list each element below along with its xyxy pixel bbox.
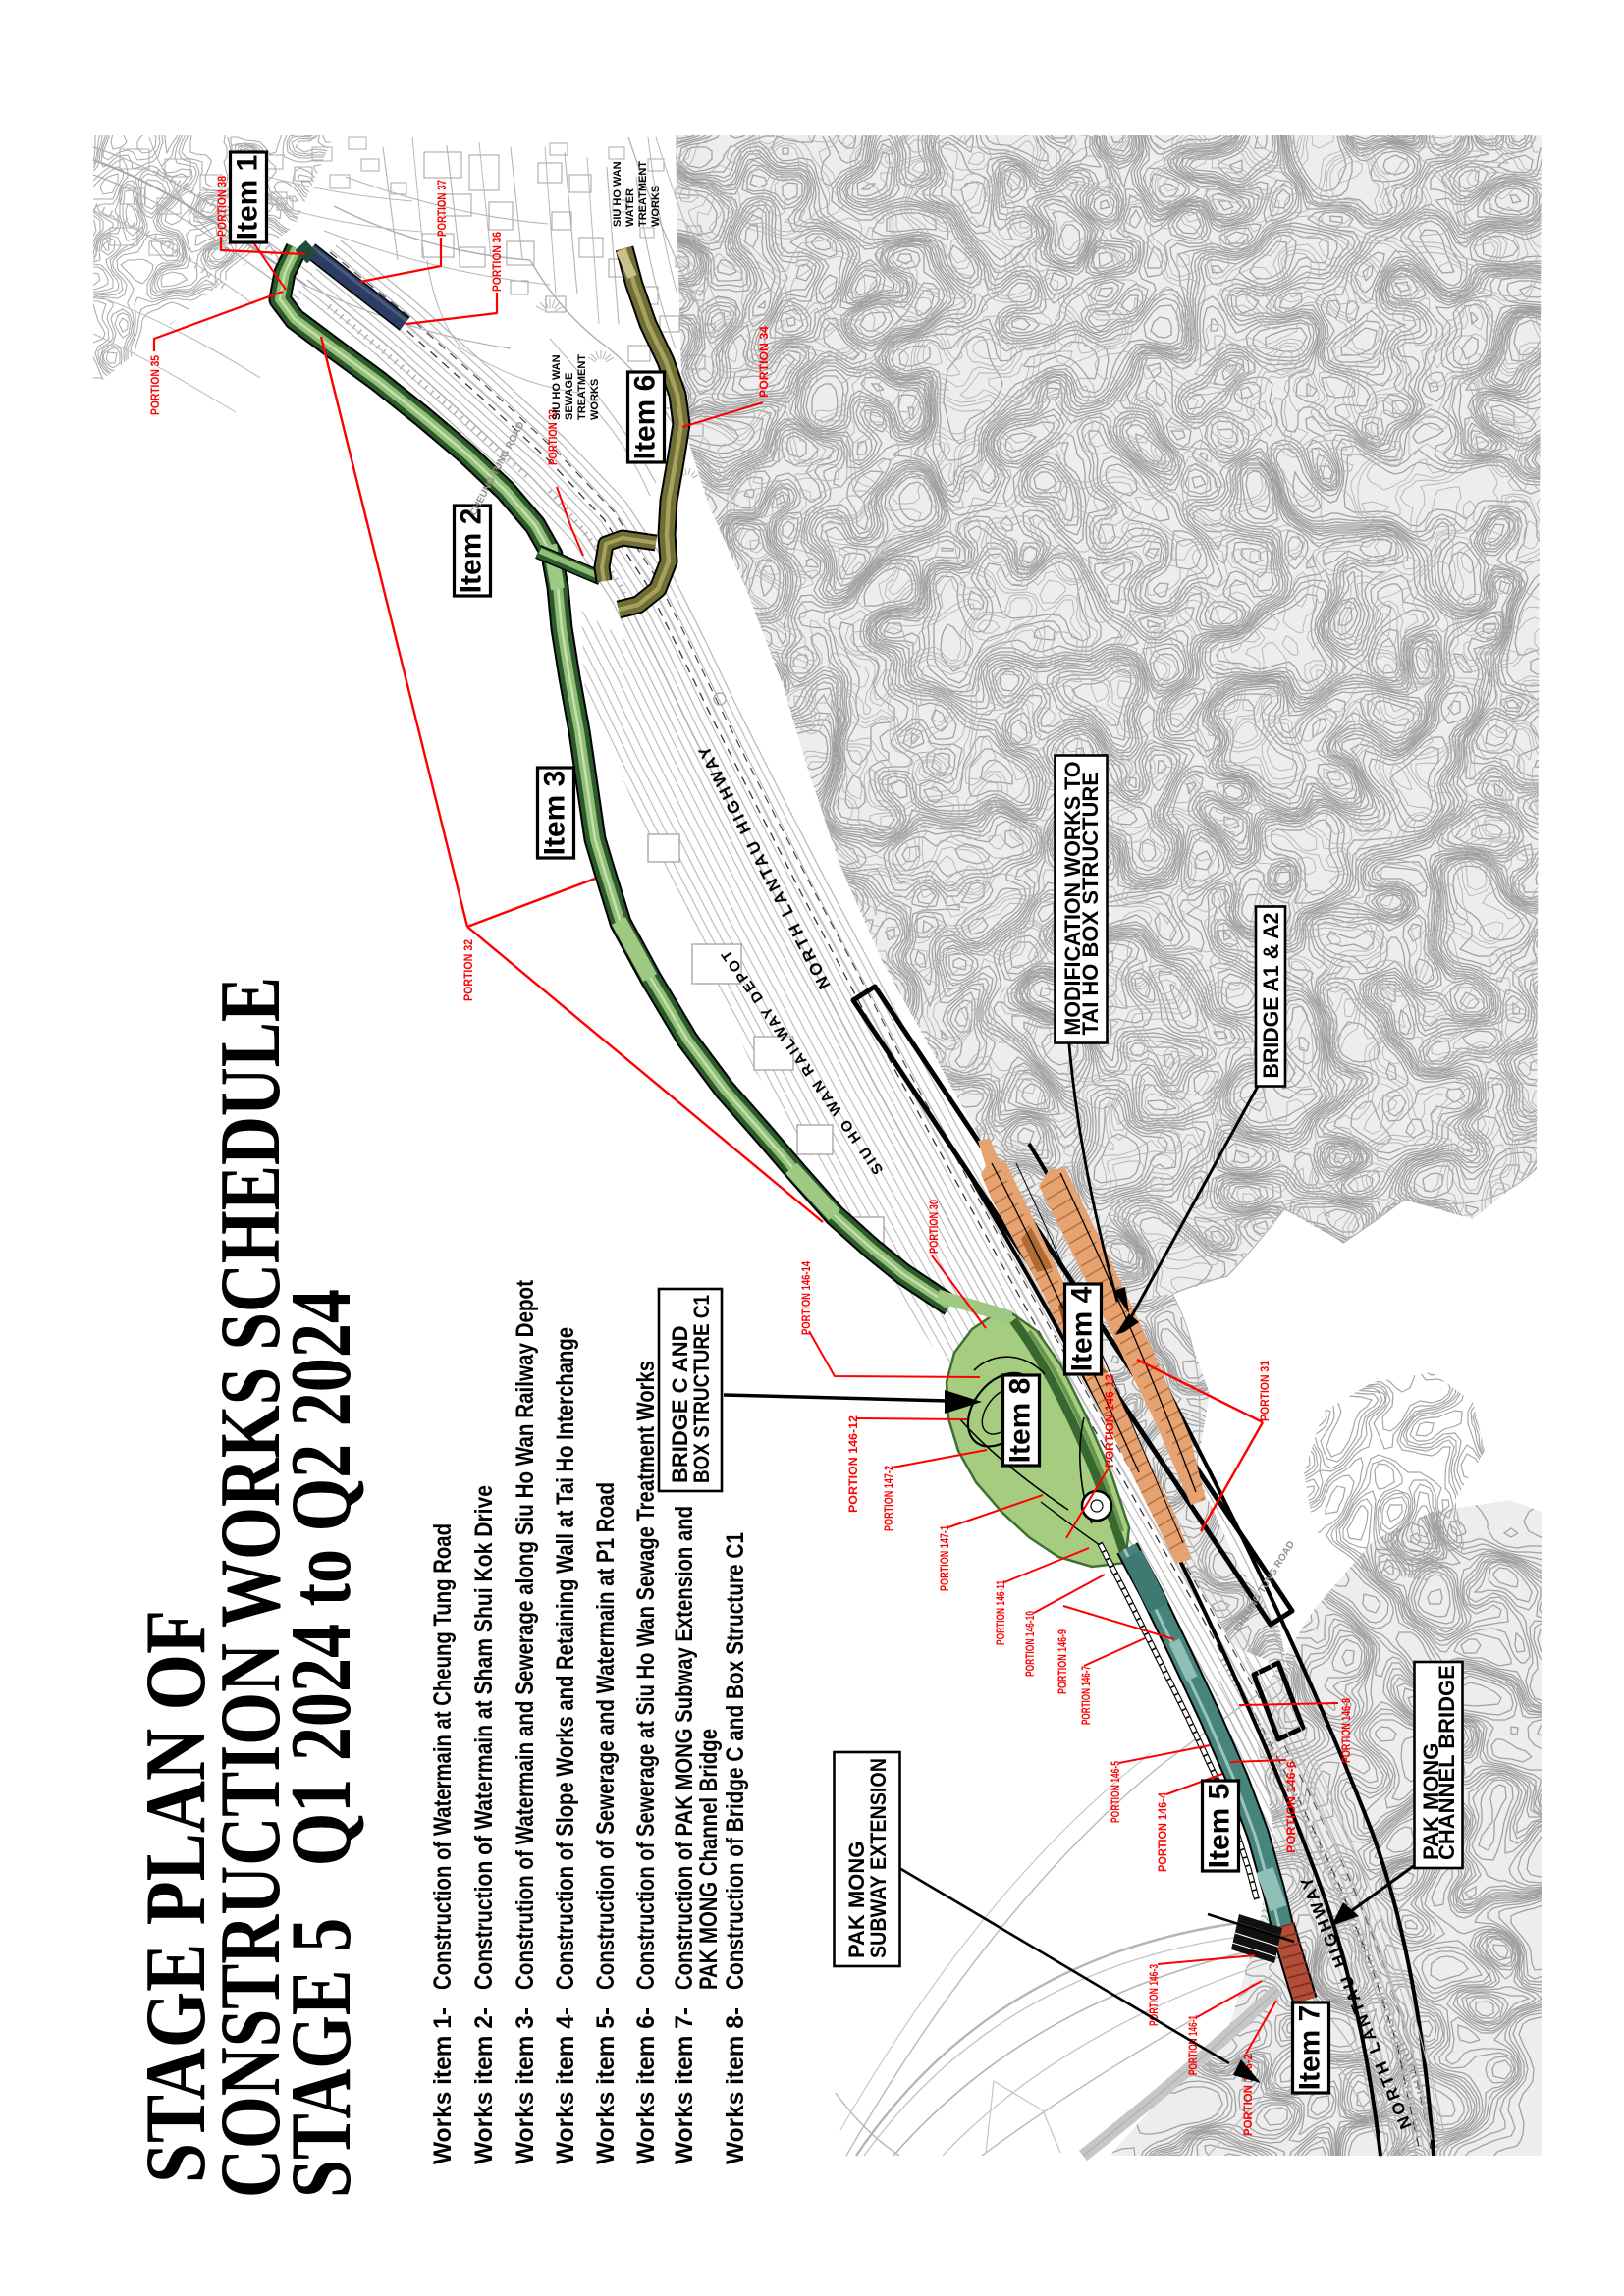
svg-text:PORTION 146-9: PORTION 146-9 [1056, 1629, 1069, 1694]
svg-text:Item 4: Item 4 [1066, 1286, 1099, 1371]
svg-text:Works item 3-: Works item 3- [512, 2007, 539, 2164]
svg-text:Item 1: Item 1 [232, 155, 264, 240]
svg-text:Item 7: Item 7 [1294, 2005, 1326, 2091]
svg-text:Works item 4-: Works item 4- [552, 2007, 579, 2164]
svg-text:PORTION 146-6: PORTION 146-6 [1284, 1761, 1298, 1853]
svg-text:Construction of PAK MONG Subwa: Construction of PAK MONG Subway Extensio… [671, 1506, 698, 1990]
svg-text:Construction of Watermain at S: Construction of Watermain at Sham Shui K… [470, 1485, 498, 1990]
svg-text:SEWAGE: SEWAGE [564, 373, 575, 420]
svg-text:WORKS: WORKS [589, 379, 601, 420]
svg-text:Item 8: Item 8 [1004, 1378, 1037, 1464]
svg-text:Construction of Sewerage and W: Construction of Sewerage and Watermain a… [592, 1482, 620, 1990]
svg-text:TAI HO BOX STRUCTURE: TAI HO BOX STRUCTURE [1078, 772, 1103, 1035]
svg-text:BRIDGE A1 & A2: BRIDGE A1 & A2 [1259, 913, 1283, 1079]
svg-text:PORTION 146-4: PORTION 146-4 [1156, 1792, 1169, 1872]
svg-text:Works item 1-: Works item 1- [429, 2007, 457, 2164]
svg-text:PORTION 146-11: PORTION 146-11 [994, 1580, 1007, 1645]
svg-text:PORTION 146-13: PORTION 146-13 [1103, 1374, 1116, 1468]
svg-text:WORKS: WORKS [650, 186, 662, 227]
svg-text:SUBWAY EXTENSION: SUBWAY EXTENSION [866, 1758, 891, 1958]
svg-text:CHANNEL BRIDGE: CHANNEL BRIDGE [1435, 1665, 1459, 1860]
svg-text:SIU HO WAN: SIU HO WAN [612, 161, 623, 227]
svg-text:Works item 5-: Works item 5- [592, 2007, 620, 2164]
svg-text:STAGE 5 Q1 2024 to Q2 2024: STAGE 5 Q1 2024 to Q2 2024 [274, 1289, 369, 2198]
svg-text:Item 5: Item 5 [1204, 1784, 1236, 1869]
svg-text:PORTION 147-1: PORTION 147-1 [938, 1525, 951, 1591]
svg-text:PORTION 38: PORTION 38 [215, 176, 229, 237]
svg-text:Constrution of Watermain and S: Constrution of Watermain and Sewerage al… [512, 1279, 539, 1990]
svg-text:Construction of Slope Works an: Construction of Slope Works and Retainin… [552, 1327, 579, 1990]
svg-text:TREATMENT: TREATMENT [637, 161, 649, 227]
svg-text:PORTION 146-8: PORTION 146-8 [1339, 1698, 1353, 1763]
svg-text:TREATMENT: TREATMENT [576, 354, 588, 420]
svg-text:Construction of Bridge C and B: Construction of Bridge C and Box Structu… [722, 1532, 749, 1990]
svg-text:Works item 6-: Works item 6- [632, 2007, 660, 2164]
svg-text:PORTION 146-14: PORTION 146-14 [799, 1261, 813, 1335]
svg-text:PAK MONG Channel Bridge: PAK MONG Channel Bridge [695, 1729, 723, 1990]
svg-text:PORTION 30: PORTION 30 [927, 1200, 941, 1254]
svg-text:PORTION 146-5: PORTION 146-5 [1109, 1761, 1122, 1823]
svg-text:Construction of Watermain at C: Construction of Watermain at Cheung Tung… [429, 1523, 457, 1990]
svg-text:PORTION 31: PORTION 31 [1258, 1361, 1272, 1421]
svg-text:BOX STRUCTURE C1: BOX STRUCTURE C1 [689, 1295, 714, 1483]
svg-text:Item 2: Item 2 [456, 508, 488, 594]
svg-text:SIU HO WAN: SIU HO WAN [551, 354, 563, 420]
svg-text:Construction of Sewerage at Si: Construction of Sewerage at Siu Ho Wan S… [632, 1361, 660, 1990]
svg-text:PORTION 147-2: PORTION 147-2 [882, 1466, 895, 1531]
svg-text:Item 3: Item 3 [539, 771, 571, 856]
svg-text:Works item 8-: Works item 8- [722, 2007, 749, 2164]
svg-text:PORTION 146-7: PORTION 146-7 [1079, 1666, 1093, 1725]
svg-text:WATER: WATER [624, 188, 636, 227]
svg-text:PORTION 36: PORTION 36 [490, 232, 504, 292]
svg-text:PORTION 35: PORTION 35 [148, 355, 162, 415]
svg-text:PORTION 37: PORTION 37 [435, 180, 449, 237]
svg-text:Works item 2-: Works item 2- [470, 2007, 498, 2164]
svg-text:Works item 7-: Works item 7- [671, 2007, 698, 2164]
svg-text:PORTION 34: PORTION 34 [757, 326, 771, 398]
svg-text:PORTION 146-10: PORTION 146-10 [1023, 1611, 1037, 1677]
svg-text:Item 6: Item 6 [629, 375, 662, 460]
svg-text:PORTION 146-12: PORTION 146-12 [846, 1415, 860, 1513]
svg-text:PORTION 32: PORTION 32 [461, 939, 475, 1001]
